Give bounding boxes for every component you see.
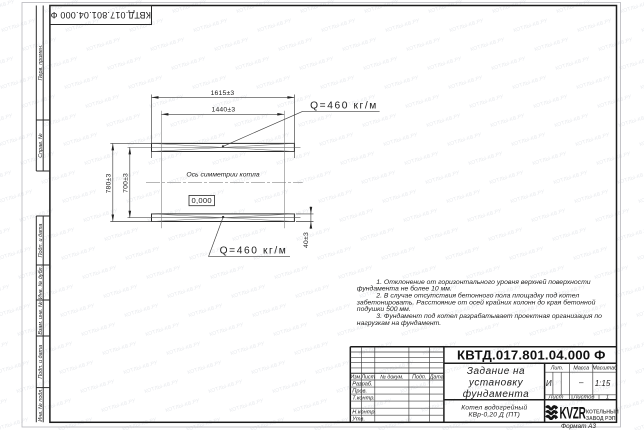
svg-text:KVZR: KVZR xyxy=(560,405,586,423)
svg-text:0,000: 0,000 xyxy=(191,196,212,205)
svg-text:1: 1 xyxy=(606,395,609,401)
svg-text:нагрузкам на фундамент.: нагрузкам на фундамент. xyxy=(357,319,441,327)
svg-text:фундамента не более 10 мм.: фундамента не более 10 мм. xyxy=(357,285,452,293)
svg-text:Формат А3: Формат А3 xyxy=(561,423,596,430)
svg-text:Q=460 кг/м: Q=460 кг/м xyxy=(310,100,378,111)
svg-text:забетонировать. Расстояние от: забетонировать. Расстояние от осей крайн… xyxy=(356,298,596,306)
svg-text:Пров.: Пров. xyxy=(352,389,367,395)
svg-text:Листов: Листов xyxy=(572,395,594,401)
svg-text:Н.контр.: Н.контр. xyxy=(352,410,376,416)
svg-text:КВТД.017.801.04.000 Ф: КВТД.017.801.04.000 Ф xyxy=(457,347,606,362)
svg-text:780±3: 780±3 xyxy=(106,174,113,194)
svg-text:1615±3: 1615±3 xyxy=(211,90,235,97)
svg-text:Лист: Лист xyxy=(548,395,564,401)
svg-text:Лист: Лист xyxy=(360,375,375,381)
svg-text:Т.контр.: Т.контр. xyxy=(352,396,375,402)
svg-text:Котел водогрейный: Котел водогрейный xyxy=(461,403,527,411)
svg-text:Дата: Дата xyxy=(429,375,444,381)
svg-text:установку: установку xyxy=(468,378,524,389)
svg-text:40±3: 40±3 xyxy=(303,232,310,248)
svg-text:Справ. №: Справ. № xyxy=(38,133,44,158)
svg-text:Изм.: Изм. xyxy=(350,375,361,381)
svg-text:Утв.: Утв. xyxy=(351,417,365,423)
svg-text:Разраб.: Разраб. xyxy=(352,382,372,388)
svg-text:КОТЕЛЬНЫЙ: КОТЕЛЬНЫЙ xyxy=(586,407,619,415)
svg-text:КВр-0,20 Д (ПТ): КВр-0,20 Д (ПТ) xyxy=(469,412,520,419)
svg-text:фундамента: фундамента xyxy=(463,388,529,400)
svg-text:Инв. № дубл.: Инв. № дубл. xyxy=(38,266,44,299)
svg-text:Масса: Масса xyxy=(573,366,589,372)
svg-text:Подп. и дата: Подп. и дата xyxy=(38,345,44,379)
svg-text:3. Фундамент под котел разраба: 3. Фундамент под котел разрабатывает про… xyxy=(376,312,602,320)
svg-text:Взам. инв. №: Взам. инв. № xyxy=(38,301,44,335)
svg-text:№ докум.: № докум. xyxy=(380,375,403,381)
svg-text:И: И xyxy=(546,379,552,388)
svg-text:–: – xyxy=(579,378,584,387)
svg-text:Лит.: Лит. xyxy=(550,366,563,372)
svg-text:ЗАВОД РЭП: ЗАВОД РЭП xyxy=(586,416,616,422)
svg-text:Масштаб: Масштаб xyxy=(592,366,618,372)
svg-text:1. Отклонение от горизонтально: 1. Отклонение от горизонтального уровня … xyxy=(376,278,591,286)
svg-text:Q=460 кг/м: Q=460 кг/м xyxy=(220,246,288,257)
svg-text:Ось симметрии котла: Ось симметрии котла xyxy=(186,172,259,179)
svg-text:1:15: 1:15 xyxy=(595,379,611,388)
svg-text:КВТД.017.801.04.000 Ф: КВТД.017.801.04.000 Ф xyxy=(50,10,151,20)
svg-text:Задание на: Задание на xyxy=(467,366,525,377)
svg-text:Подп. и дата: Подп. и дата xyxy=(38,224,44,258)
svg-text:Подп.: Подп. xyxy=(412,375,426,381)
svg-text:Перв. примен.: Перв. примен. xyxy=(38,45,44,81)
svg-text:подушки 500 мм.: подушки 500 мм. xyxy=(357,305,411,313)
svg-text:Инв. № подл.: Инв. № подл. xyxy=(38,388,44,421)
svg-text:1440±3: 1440±3 xyxy=(211,107,235,114)
svg-text:2. В случае отсутствия бетонно: 2. В случае отсутствия бетонного пола пл… xyxy=(375,292,579,300)
svg-text:700±3: 700±3 xyxy=(123,173,130,193)
